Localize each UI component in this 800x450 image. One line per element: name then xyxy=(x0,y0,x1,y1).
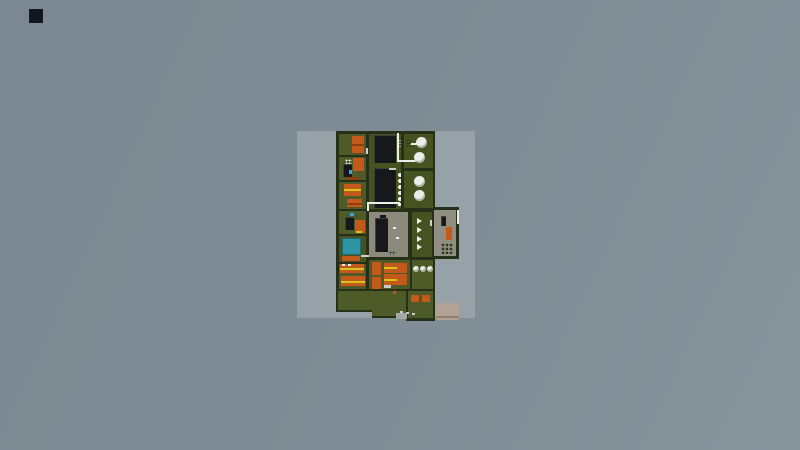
pipe-l-horizontal xyxy=(367,202,400,204)
indicator-blue-2 xyxy=(350,213,354,216)
machine-dark-2[interactable] xyxy=(345,217,354,230)
tank-small-1[interactable] xyxy=(413,266,419,272)
pillow-2 xyxy=(348,264,351,266)
machine-orange-4-line xyxy=(347,203,362,205)
bed-mid-1-line xyxy=(384,267,397,269)
annex-item-orange[interactable] xyxy=(446,227,452,240)
bed-mid-vertical-1[interactable] xyxy=(372,262,381,275)
yard-orange-dot xyxy=(393,291,396,294)
machine-orange-3-line xyxy=(344,189,361,191)
conveyor-arrow-1 xyxy=(417,218,422,224)
tank-3[interactable] xyxy=(414,176,425,187)
tank-4[interactable] xyxy=(414,190,425,201)
room-tanks-3[interactable] xyxy=(412,260,433,289)
dash-yellow xyxy=(356,231,362,233)
bed-mid-vertical-2[interactable] xyxy=(372,277,381,289)
pillow-1 xyxy=(342,264,345,266)
speck-white-1 xyxy=(393,227,396,229)
machine-orange-2[interactable] xyxy=(353,158,364,171)
speck-dark-rows xyxy=(389,251,396,255)
machine-black-c[interactable] xyxy=(375,218,388,252)
tank-2[interactable] xyxy=(414,152,425,163)
machine-black-a[interactable] xyxy=(374,135,396,163)
annex-item-dark[interactable] xyxy=(441,216,446,226)
tank-1[interactable] xyxy=(416,137,427,148)
locker-white xyxy=(384,285,391,288)
bed-left-1-line xyxy=(340,268,364,270)
yard-orange-2[interactable] xyxy=(422,295,430,302)
machine-b-dash xyxy=(389,168,396,170)
conveyor-arrow-2 xyxy=(417,227,422,233)
room-conveyor[interactable] xyxy=(412,212,432,257)
pipe-main-vertical xyxy=(397,133,399,162)
path-speck-3 xyxy=(412,313,415,315)
bed-left-2-line xyxy=(341,281,365,283)
door-dash-1 xyxy=(366,148,368,154)
yard-floor-a[interactable] xyxy=(338,291,374,310)
gauge-dots-2 xyxy=(397,172,401,206)
machine-orange-1-line xyxy=(352,144,364,146)
shelf-orange-2 xyxy=(342,256,360,261)
door-dash-2 xyxy=(361,255,369,257)
conveyor-arrow-3 xyxy=(417,236,422,242)
annex-pipe xyxy=(457,210,459,224)
tank-small-3[interactable] xyxy=(427,266,433,272)
game-viewport[interactable] xyxy=(0,0,800,450)
tank-small-2[interactable] xyxy=(420,266,426,272)
pad-loading-line xyxy=(436,316,459,318)
bed-mid-2-line xyxy=(384,279,397,281)
indicator-blue-1 xyxy=(349,170,352,174)
conveyor-arrow-4 xyxy=(417,244,422,250)
yard-orange-1[interactable] xyxy=(411,295,419,302)
crate-dots-dark xyxy=(406,139,411,147)
shelf-orange-1 xyxy=(348,177,360,180)
annex-pallet-dots xyxy=(441,243,453,254)
water-pool[interactable] xyxy=(342,238,361,255)
annex-door xyxy=(430,220,432,226)
corner-dark-square xyxy=(29,9,43,23)
speck-white-2 xyxy=(396,237,399,239)
pipe-l-vertical xyxy=(367,202,369,211)
pad-small xyxy=(396,313,407,319)
machine-c-cap xyxy=(380,215,386,218)
